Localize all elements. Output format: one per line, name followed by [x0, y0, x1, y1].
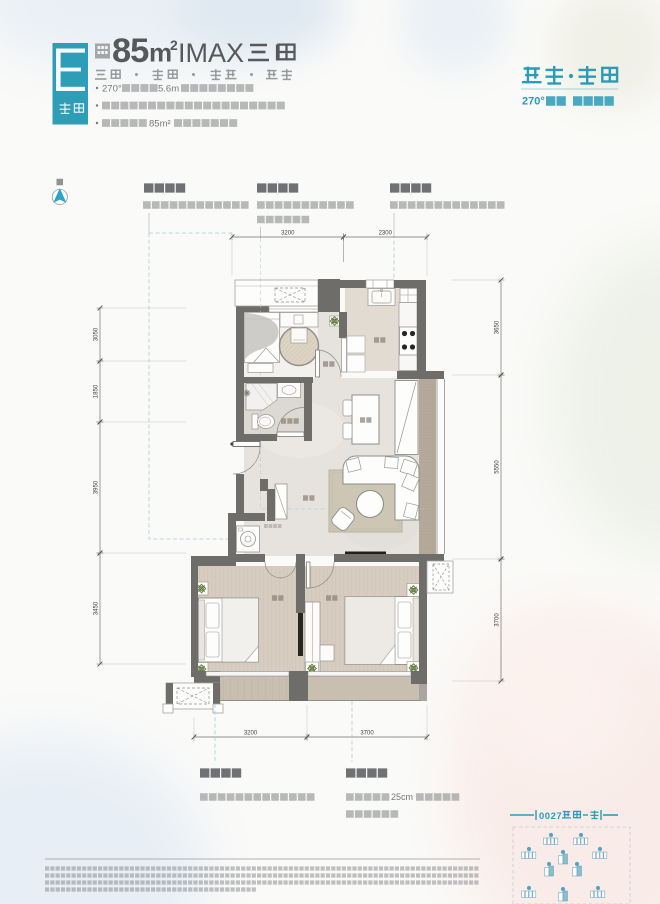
svg-text:3700: 3700: [495, 613, 501, 627]
svg-text:2300: 2300: [379, 231, 393, 237]
svg-text:3200: 3200: [281, 231, 295, 237]
svg-text:25cm: 25cm: [391, 792, 413, 802]
svg-text:270°: 270°: [522, 96, 545, 108]
svg-text:3650: 3650: [495, 320, 501, 334]
svg-text:5550: 5550: [495, 460, 501, 474]
svg-text:3700: 3700: [360, 731, 374, 737]
svg-text:85m²: 85m²: [149, 119, 171, 130]
svg-text:5.6m: 5.6m: [158, 84, 179, 95]
svg-text:IMAX: IMAX: [178, 38, 244, 68]
svg-text:85: 85: [112, 32, 149, 70]
svg-text:270°: 270°: [102, 84, 122, 95]
svg-text:3950: 3950: [94, 480, 100, 494]
svg-text:3200: 3200: [244, 731, 258, 737]
svg-text:0027: 0027: [539, 811, 562, 822]
svg-text:m: m: [149, 38, 172, 68]
svg-text:3050: 3050: [94, 327, 100, 341]
svg-text:1850: 1850: [94, 384, 100, 398]
svg-text:2: 2: [170, 37, 178, 53]
svg-text:3450: 3450: [94, 601, 100, 615]
